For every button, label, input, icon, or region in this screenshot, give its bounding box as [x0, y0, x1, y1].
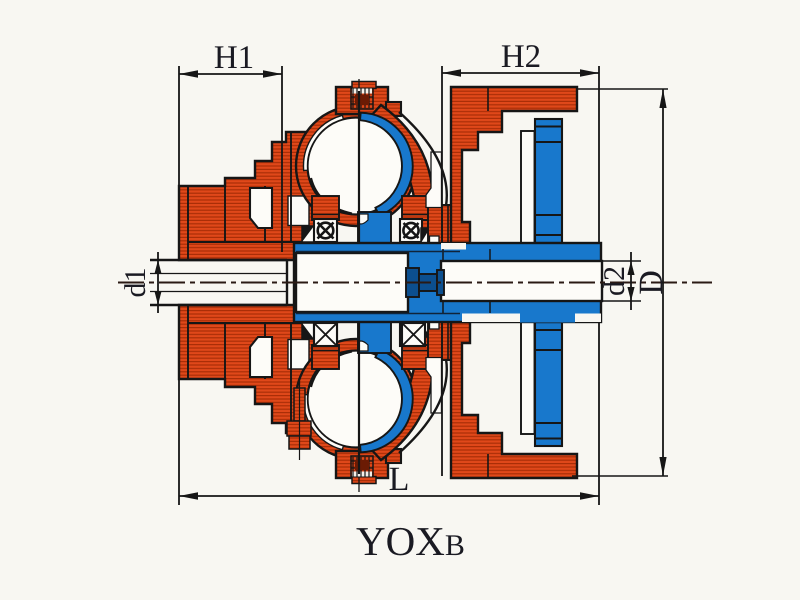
- svg-text:H1: H1: [214, 40, 254, 76]
- svg-text:D: D: [633, 270, 670, 295]
- svg-text:d2: d2: [598, 266, 631, 296]
- svg-text:L: L: [389, 461, 410, 498]
- svg-text:d1: d1: [119, 268, 152, 298]
- svg-text:H2: H2: [501, 39, 541, 75]
